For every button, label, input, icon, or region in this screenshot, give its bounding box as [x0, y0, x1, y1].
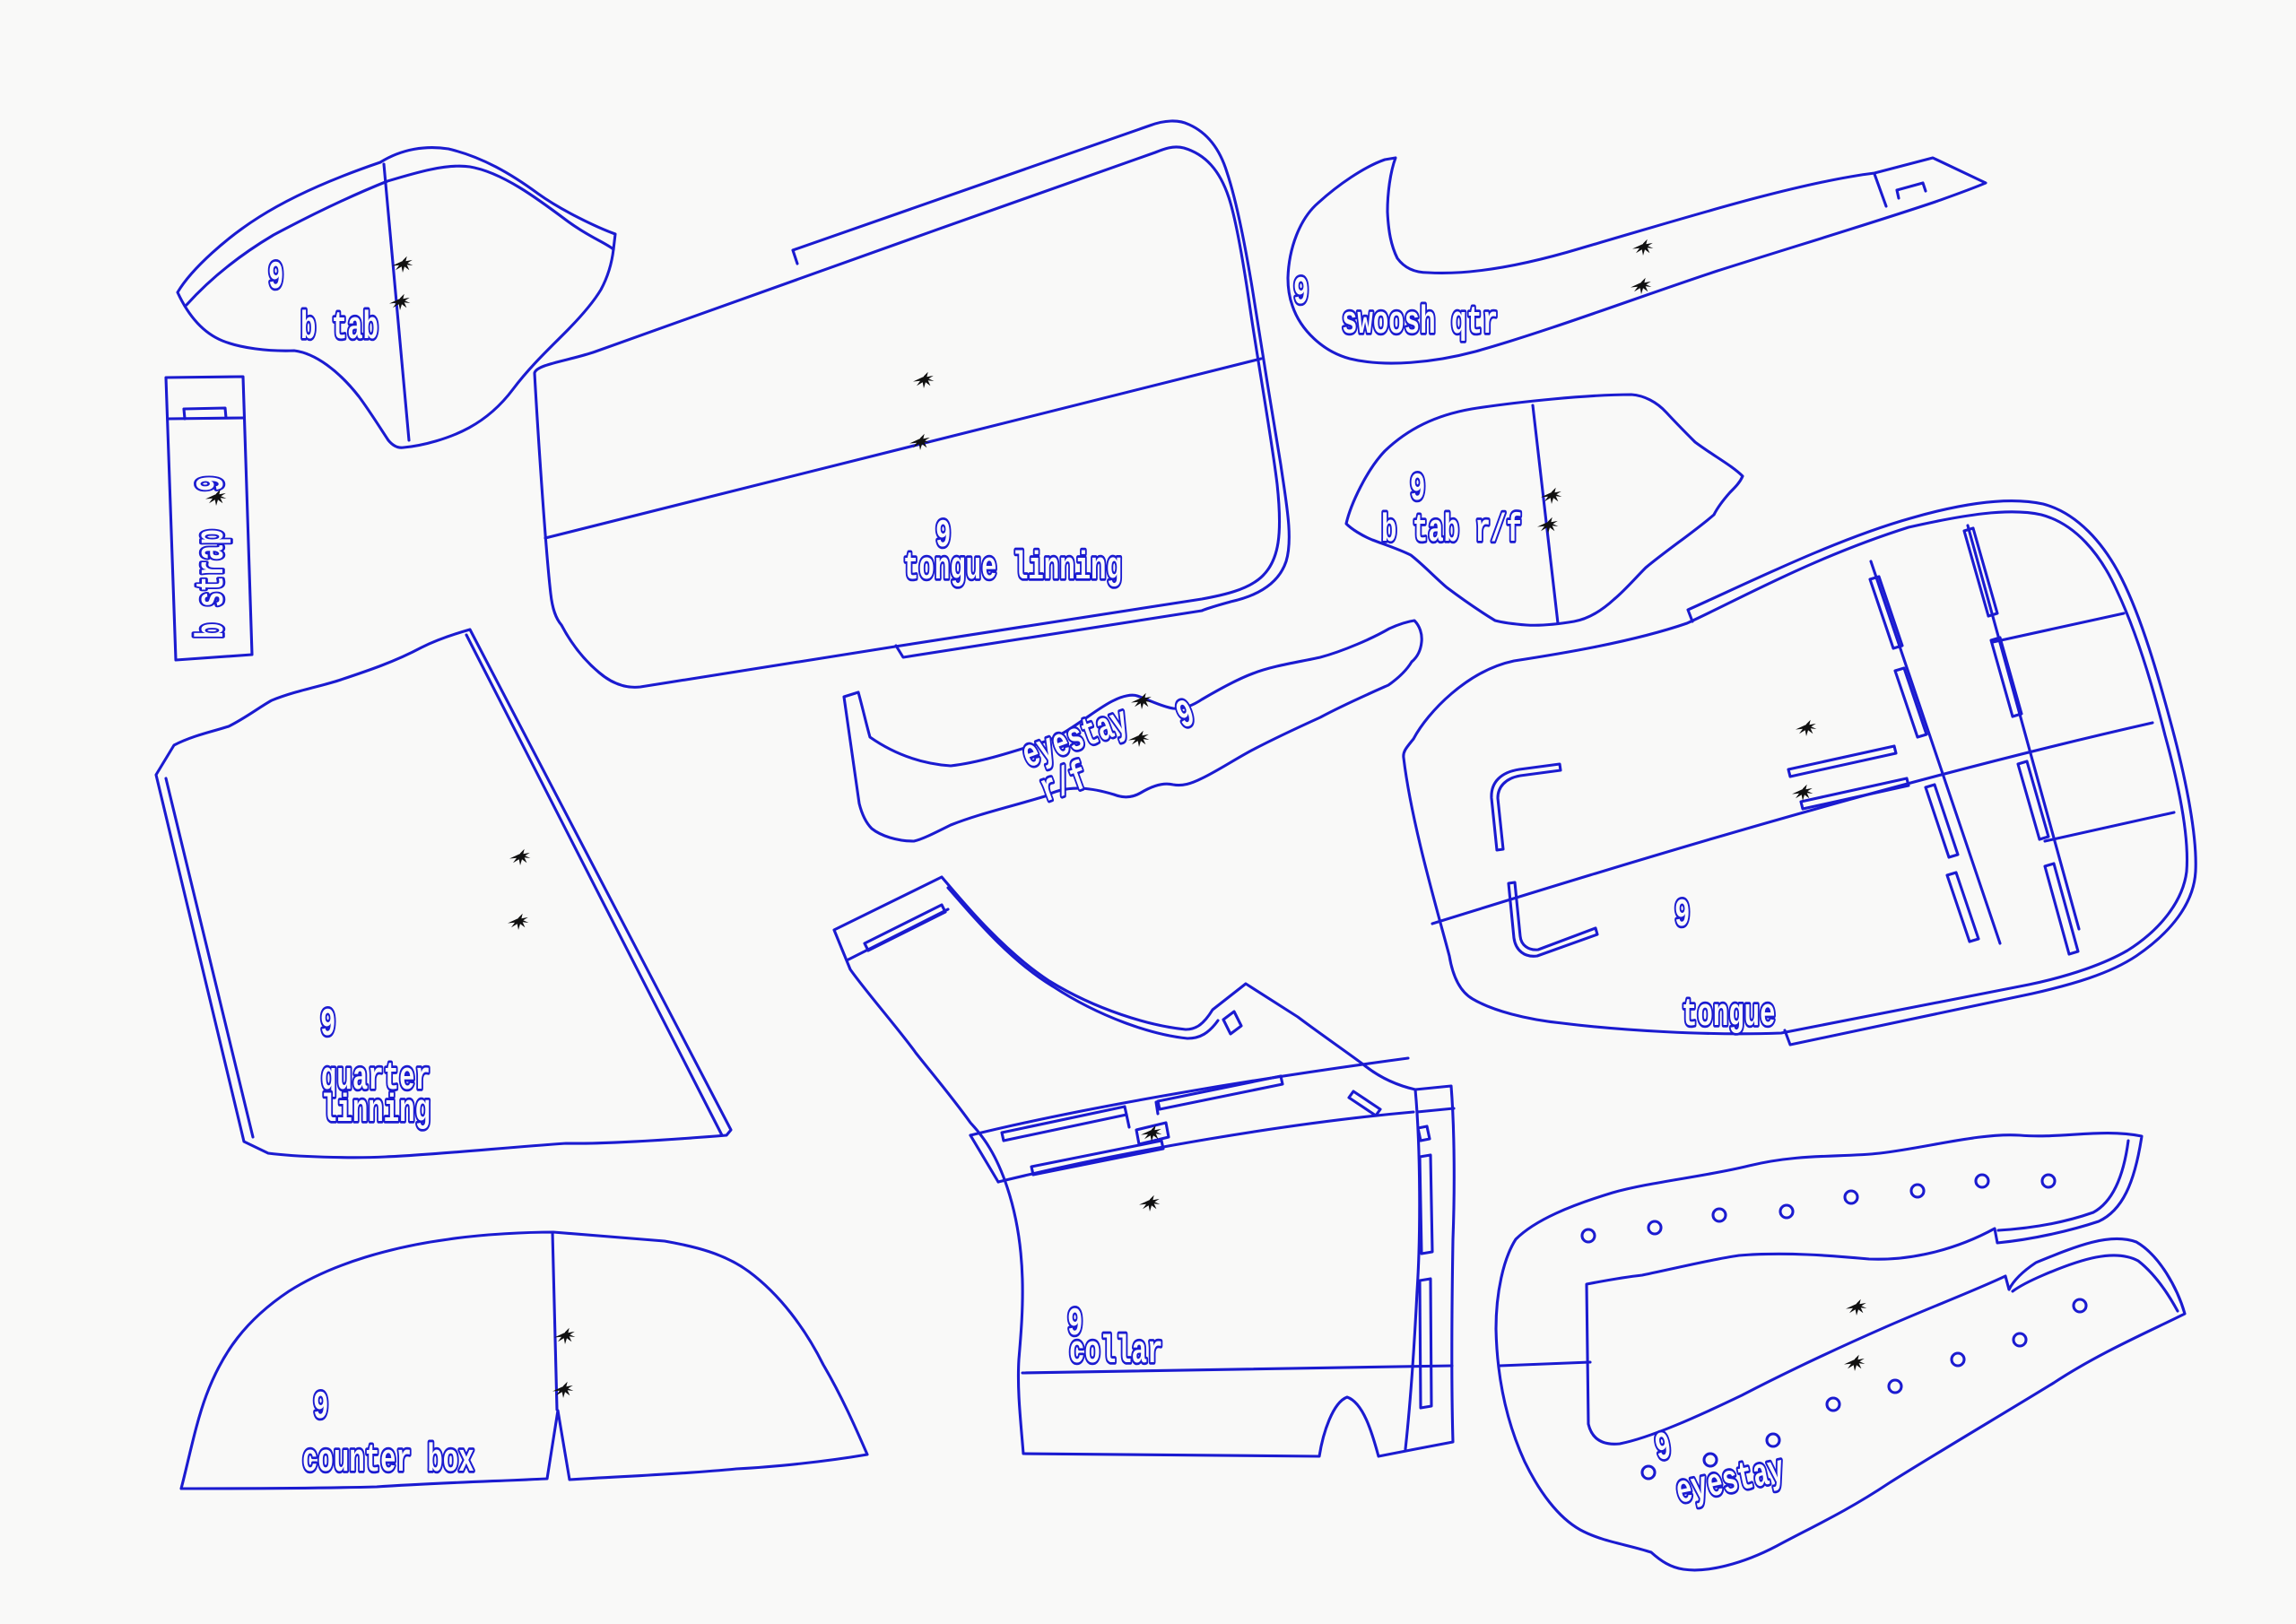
svg-text:tongue: tongue [1682, 994, 1776, 1038]
svg-text:counter box: counter box [302, 1439, 474, 1484]
svg-text:collar: collar [1069, 1331, 1163, 1376]
svg-text:9: 9 [1293, 272, 1309, 317]
svg-text:b strap: b strap [191, 529, 236, 638]
svg-text:9: 9 [268, 256, 283, 301]
svg-text:9: 9 [313, 1386, 328, 1431]
svg-text:linning: linning [321, 1090, 430, 1134]
svg-text:9: 9 [1410, 468, 1425, 513]
svg-text:swoosh qtr: swoosh qtr [1342, 301, 1498, 346]
svg-text:9: 9 [320, 1003, 335, 1048]
svg-text:9: 9 [191, 476, 236, 491]
svg-text:b tab r/f: b tab r/f [1381, 509, 1522, 554]
svg-text:tongue linning: tongue linning [903, 547, 1122, 592]
svg-text:9: 9 [1674, 894, 1690, 939]
svg-text:b tab: b tab [300, 307, 378, 352]
